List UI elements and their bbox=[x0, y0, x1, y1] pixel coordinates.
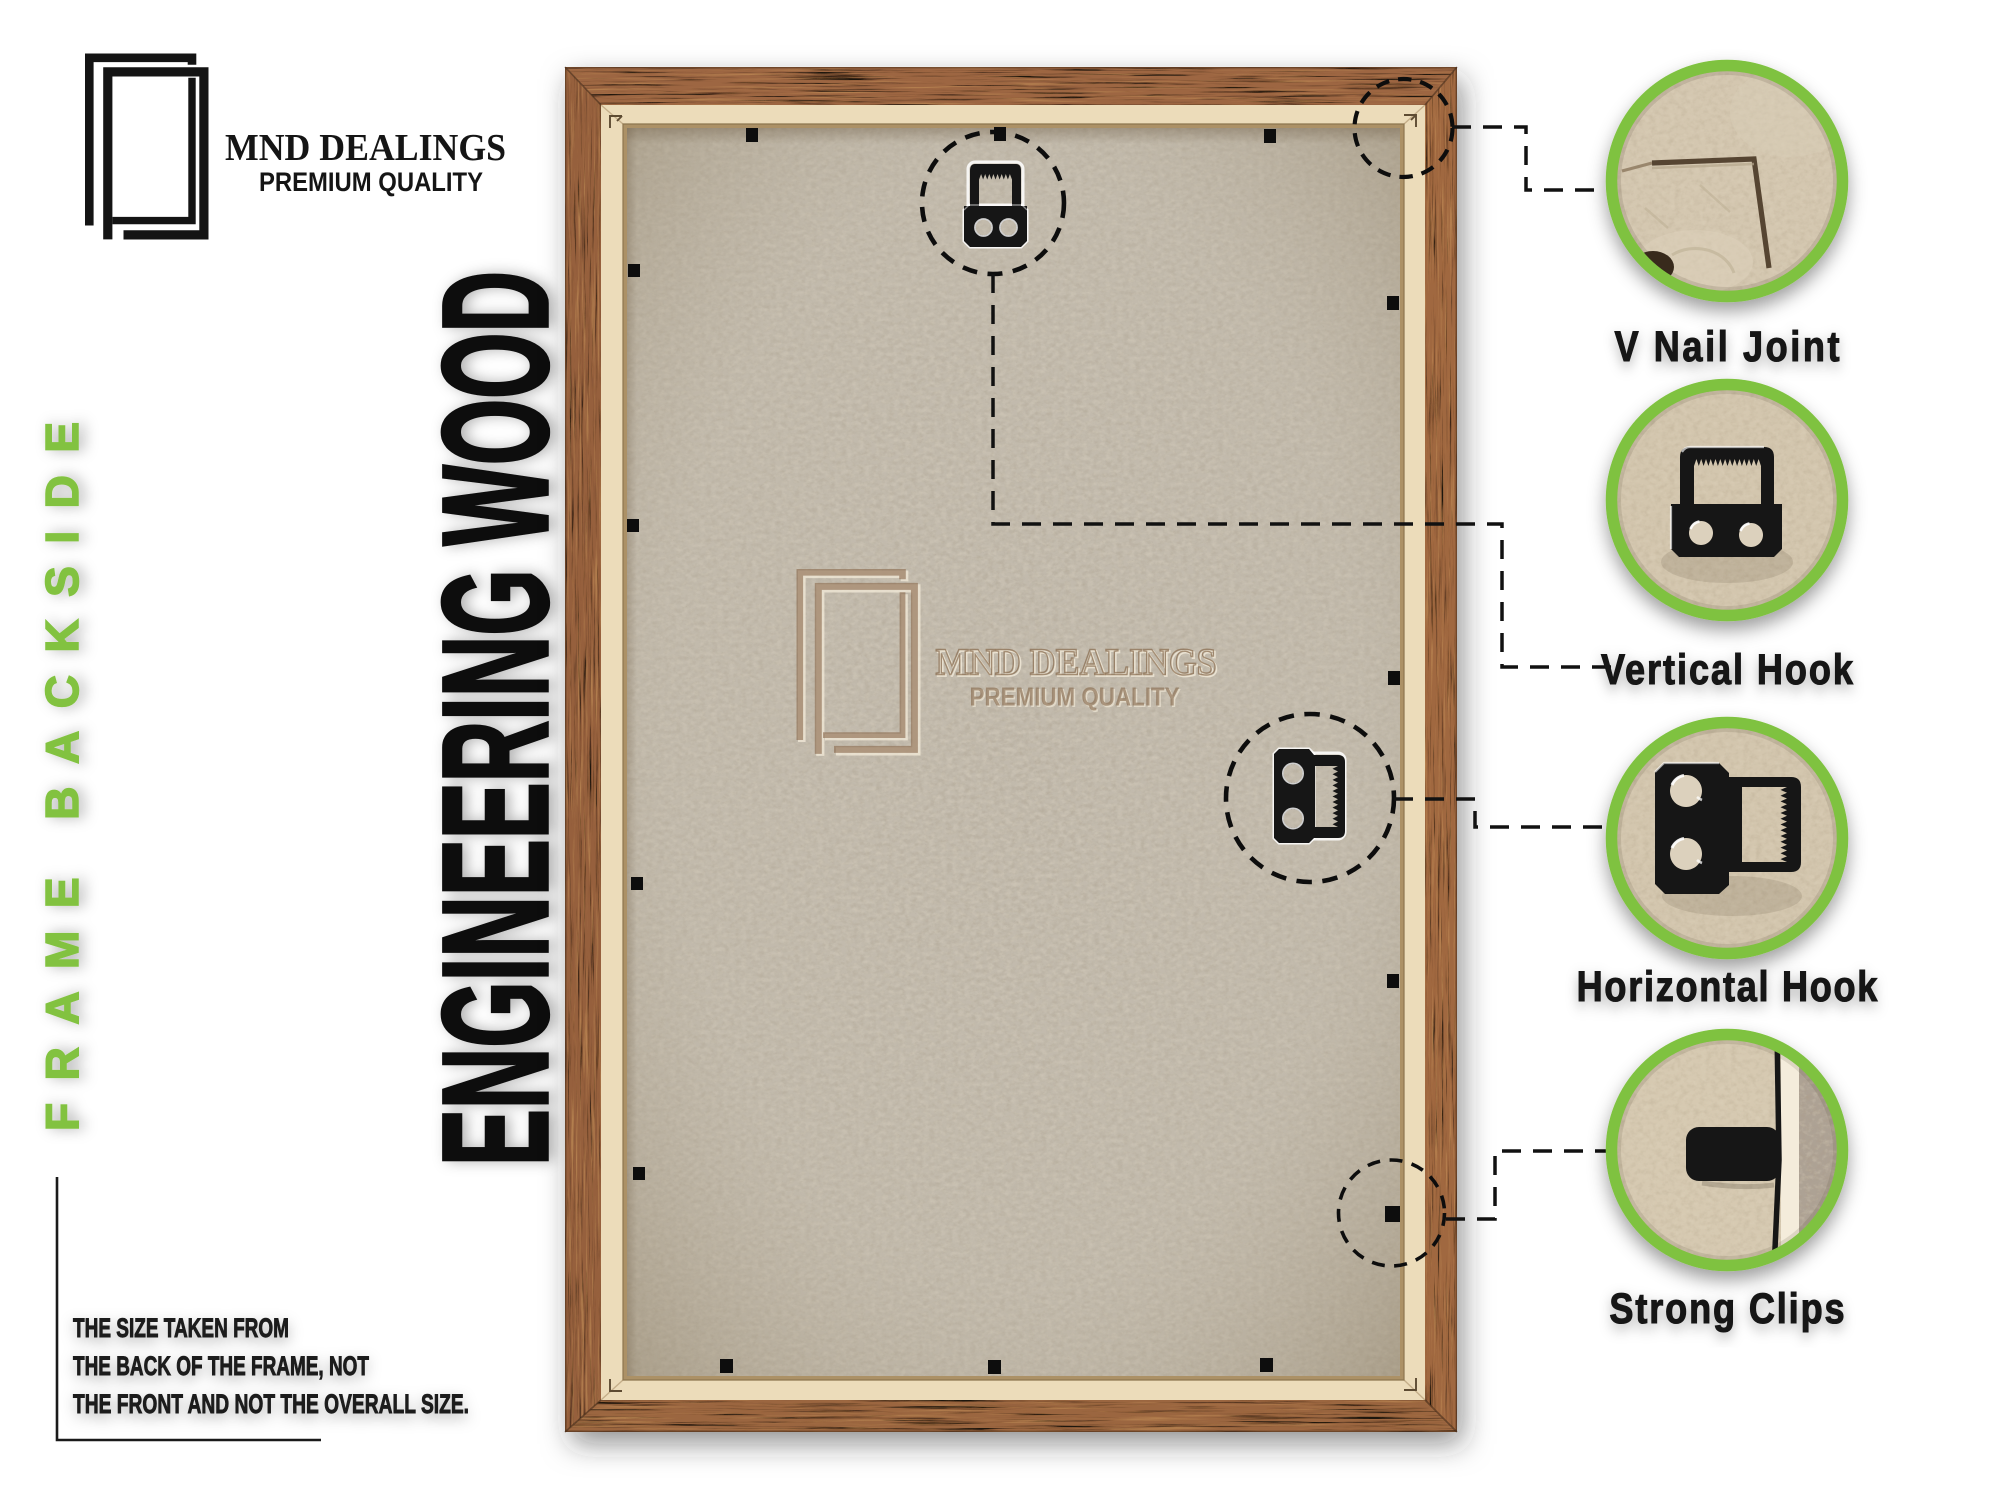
svg-text:THE BACK OF THE FRAME, NOT: THE BACK OF THE FRAME, NOT bbox=[73, 1351, 369, 1381]
svg-text:Vertical Hook: Vertical Hook bbox=[1601, 646, 1854, 694]
svg-text:Horizontal Hook: Horizontal Hook bbox=[1577, 963, 1879, 1011]
svg-text:ENGINEERING WOOD: ENGINEERING WOOD bbox=[411, 271, 579, 1166]
svg-text:Strong Clips: Strong Clips bbox=[1609, 1285, 1844, 1333]
svg-text:THE FRONT AND NOT THE OVERALL: THE FRONT AND NOT THE OVERALL SIZE. bbox=[73, 1389, 469, 1419]
svg-text:PREMIUM QUALITY: PREMIUM QUALITY bbox=[970, 682, 1180, 712]
svg-text:THE SIZE TAKEN FROM: THE SIZE TAKEN FROM bbox=[73, 1313, 289, 1343]
svg-text:MND DEALINGS: MND DEALINGS bbox=[225, 127, 506, 169]
svg-text:V Nail Joint: V Nail Joint bbox=[1614, 323, 1839, 371]
svg-text:PREMIUM QUALITY: PREMIUM QUALITY bbox=[259, 167, 483, 197]
svg-text:MND DEALINGS: MND DEALINGS bbox=[936, 642, 1217, 684]
